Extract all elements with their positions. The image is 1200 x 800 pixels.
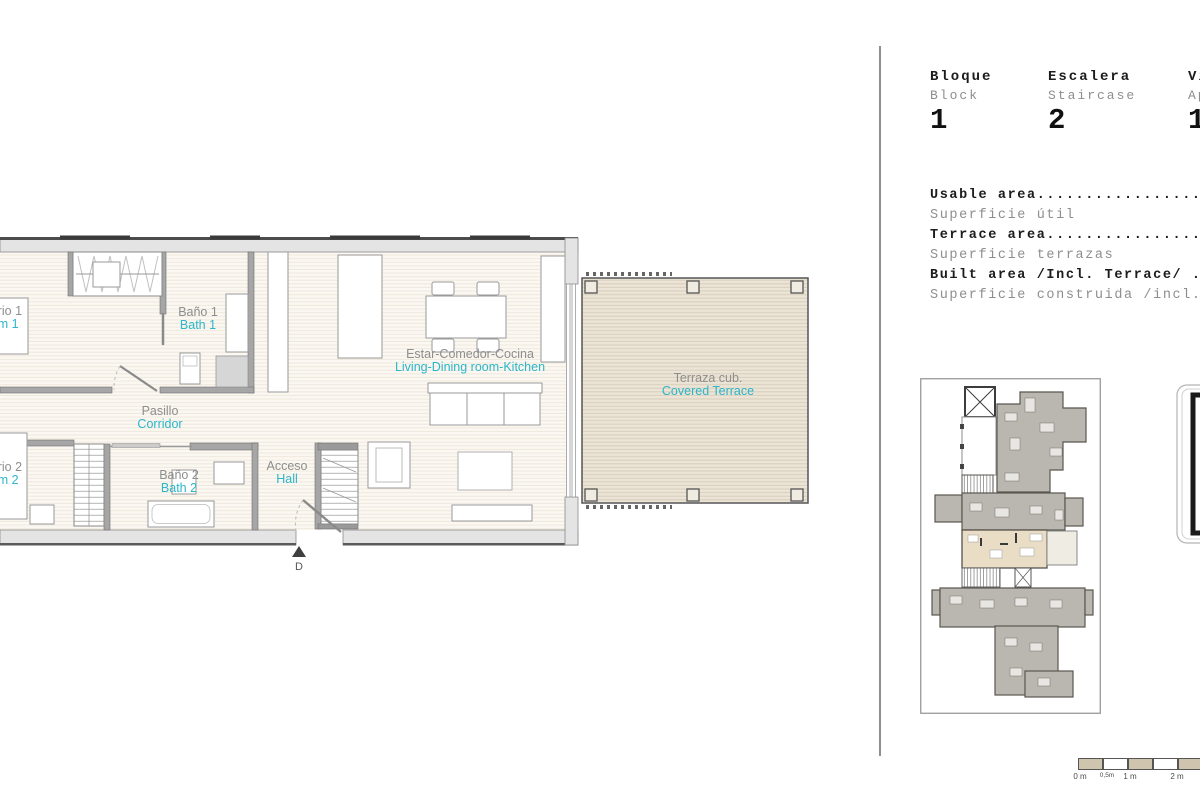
coffee-table	[458, 452, 512, 490]
block-label-en: Block	[930, 88, 992, 103]
built-area-subtitle: Superficie construida /incl. terrazas/	[930, 286, 1200, 306]
usable-area-subtitle: Superficie útil	[930, 206, 1200, 226]
key-plan	[920, 378, 1101, 714]
scale-label-1m: 1 m	[1123, 772, 1136, 781]
usable-area-title: Usable area.............................…	[930, 186, 1200, 206]
staircase-label-es: Escalera	[1048, 69, 1136, 85]
sofa-back	[428, 383, 542, 393]
scale-segment	[1103, 758, 1128, 770]
armchair-seat	[376, 448, 402, 482]
closet-hall	[321, 450, 358, 524]
chair	[432, 282, 454, 295]
built-area-title: Built area /Incl. Terrace/ .............…	[930, 266, 1200, 286]
kitchen-counter	[541, 256, 565, 362]
floor-plan: D Dormitorio 1 Bedroom 1 Baño 1 Bath 1 P…	[0, 0, 880, 800]
label-living-en: Living-Dining room-Kitchen	[395, 360, 545, 374]
chair	[477, 282, 499, 295]
block-number: 1	[930, 104, 992, 137]
header-staircase: Escalera Staircase 2	[1048, 69, 1136, 137]
terrace-sliding-door	[572, 284, 576, 497]
sliding-door-panel	[112, 444, 160, 448]
label-terrace-en: Covered Terrace	[662, 384, 754, 398]
scale-segment	[1153, 758, 1178, 770]
label-terrace-es: Terraza cub.	[674, 371, 743, 385]
kitchen-island	[338, 255, 382, 358]
label-corridor-es: Pasillo	[142, 404, 179, 418]
area-list: Usable area.............................…	[930, 186, 1200, 306]
keyplan-stair-core	[962, 568, 1000, 587]
sideboard	[452, 505, 532, 521]
staircase-label-en: Staircase	[1048, 88, 1136, 103]
dining-table	[426, 296, 506, 338]
label-bedroom2-en: Bedroom 2	[0, 473, 19, 487]
sink	[214, 462, 244, 484]
label-bedroom1-en: Bedroom 1	[0, 317, 19, 331]
shower	[216, 356, 248, 387]
apartment-label-es: Vivienda	[1188, 69, 1200, 85]
terrace-sliding-door	[567, 284, 571, 497]
keyplan-stairs	[962, 475, 993, 493]
label-hall-en: Hall	[276, 472, 298, 486]
sink	[226, 294, 248, 352]
keyplan-elevator	[1015, 568, 1031, 587]
label-living-es: Estar-Comedor-Cocina	[406, 347, 534, 361]
apartment-label-en: Apartment	[1188, 88, 1200, 103]
apartment-number: 1	[1188, 104, 1200, 137]
label-bath1-es: Baño 1	[178, 305, 218, 319]
sofa	[430, 393, 540, 425]
label-corridor-en: Corridor	[137, 417, 182, 431]
label-bedroom1-es: Dormitorio 1	[0, 304, 22, 318]
header-apartment: Vivienda Apartment 1	[1188, 69, 1200, 137]
label-bedroom2-es: Dormitorio 2	[0, 460, 22, 474]
scale-segment	[1178, 758, 1200, 770]
wardrobe-bedroom2	[74, 444, 104, 526]
label-bath2-en: Bath 2	[161, 481, 197, 495]
keyplan-tower	[962, 417, 996, 475]
scale-segment	[1128, 758, 1153, 770]
panel-divider	[879, 46, 881, 756]
scale-label-0m: 0 m	[1073, 772, 1086, 781]
kitchen-counter	[268, 252, 288, 392]
keyplan-unit-terrace	[1047, 531, 1077, 565]
label-hall-es: Acceso	[267, 459, 308, 473]
scale-segment	[1078, 758, 1103, 770]
plan-sheet: { "header": { "columns": [ {"label_es": …	[0, 0, 1200, 800]
entrance-arrow-icon	[292, 546, 306, 557]
block-label-es: Bloque	[930, 69, 992, 85]
header-block: Bloque Block 1	[930, 69, 992, 137]
label-bath2-es: Baño 2	[159, 468, 199, 482]
terrace-area-title: Terrace area............................…	[930, 226, 1200, 246]
terrace-area-subtitle: Superficie terrazas	[930, 246, 1200, 266]
desk	[93, 262, 120, 287]
staircase-number: 2	[1048, 104, 1136, 137]
entrance-marker: D	[292, 546, 306, 573]
scale-label-05m: 0,5m	[1100, 772, 1114, 779]
nightstand	[30, 505, 54, 524]
entrance-letter: D	[295, 561, 303, 573]
scale-label-2m: 2 m	[1170, 772, 1183, 781]
keyplan-shaft	[965, 387, 995, 417]
label-bath1-en: Bath 1	[180, 318, 216, 332]
site-plan-partial	[1172, 383, 1200, 547]
